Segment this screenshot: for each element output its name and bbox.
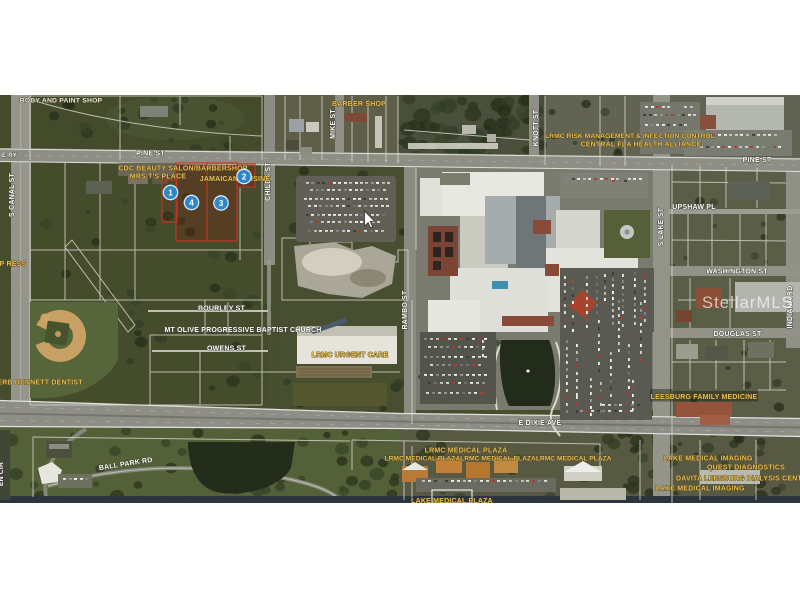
svg-text:ERB BENNETT DENTIST: ERB BENNETT DENTIST xyxy=(0,380,83,387)
svg-text:MRS T'S PLACE: MRS T'S PLACE xyxy=(130,174,187,181)
svg-text:KNOTT ST: KNOTT ST xyxy=(533,109,540,146)
svg-text:DAVITA LEESBURG DIALYSIS CENTE: DAVITA LEESBURG DIALYSIS CENTER xyxy=(676,476,800,483)
svg-text:P RESS: P RESS xyxy=(0,261,27,268)
svg-text:3: 3 xyxy=(219,199,224,208)
svg-text:LRMC RISK MANAGEMENT & INFECTI: LRMC RISK MANAGEMENT & INFECTION CONTROL xyxy=(545,133,715,140)
svg-text:LAKE MEDICAL IMAGING: LAKE MEDICAL IMAGING xyxy=(655,486,745,493)
svg-text:LRMC MEDICAL PLAZA: LRMC MEDICAL PLAZA xyxy=(425,448,508,455)
svg-text:2: 2 xyxy=(242,173,247,182)
svg-text:StellarMLS: StellarMLS xyxy=(702,294,794,312)
svg-text:UPSHAW PL: UPSHAW PL xyxy=(672,204,716,211)
svg-text:BODY AND PAINT SHOP: BODY AND PAINT SHOP xyxy=(20,98,103,105)
svg-text:LEESBURG FAMILY MEDICINE: LEESBURG FAMILY MEDICINE xyxy=(651,394,758,401)
svg-text:QUEST DIAGNOSTICS: QUEST DIAGNOSTICS xyxy=(707,465,785,472)
svg-text:RAMBO ST: RAMBO ST xyxy=(402,290,409,329)
svg-text:S LAKE ST: S LAKE ST xyxy=(658,207,665,246)
svg-text:E DIXIE AVE: E DIXIE AVE xyxy=(519,420,562,427)
svg-text:4: 4 xyxy=(189,199,194,208)
svg-text:OWENS ST: OWENS ST xyxy=(207,346,246,353)
svg-text:JAMAICAN CUISINE: JAMAICAN CUISINE xyxy=(200,176,271,183)
svg-text:PINE ST: PINE ST xyxy=(136,151,165,158)
svg-text:S CANAL ST: S CANAL ST xyxy=(9,173,16,217)
svg-text:CENTRAL FLA HEALTH ALLIANCE: CENTRAL FLA HEALTH ALLIANCE xyxy=(581,142,702,149)
svg-text:EN CIR: EN CIR xyxy=(0,462,5,486)
svg-text:LRMC URGENT CARE: LRMC URGENT CARE xyxy=(312,352,389,359)
svg-text:1: 1 xyxy=(168,189,173,198)
svg-text:LAKE MEDICAL IMAGING: LAKE MEDICAL IMAGING xyxy=(663,456,753,463)
svg-text:E RY: E RY xyxy=(2,152,18,159)
svg-text:BARBER SHOP: BARBER SHOP xyxy=(332,101,386,108)
svg-text:MT OLIVE PROGRESSIVE BAPTIST C: MT OLIVE PROGRESSIVE BAPTIST CHURCH xyxy=(164,327,321,334)
svg-text:CDC BEAUTY SALON/BARBERSHOP: CDC BEAUTY SALON/BARBERSHOP xyxy=(118,166,247,173)
svg-text:LRMC MEDICAL PLAZALRMC MEDICAL: LRMC MEDICAL PLAZALRMC MEDICAL PLAZALRMC… xyxy=(385,456,612,463)
svg-text:DOUGLAS ST: DOUGLAS ST xyxy=(714,331,762,338)
svg-text:BOURLEY ST: BOURLEY ST xyxy=(198,306,246,313)
svg-text:WASHINGTON ST: WASHINGTON ST xyxy=(706,269,768,276)
svg-text:MIKE ST: MIKE ST xyxy=(330,109,337,139)
svg-text:PINE ST: PINE ST xyxy=(743,157,772,164)
